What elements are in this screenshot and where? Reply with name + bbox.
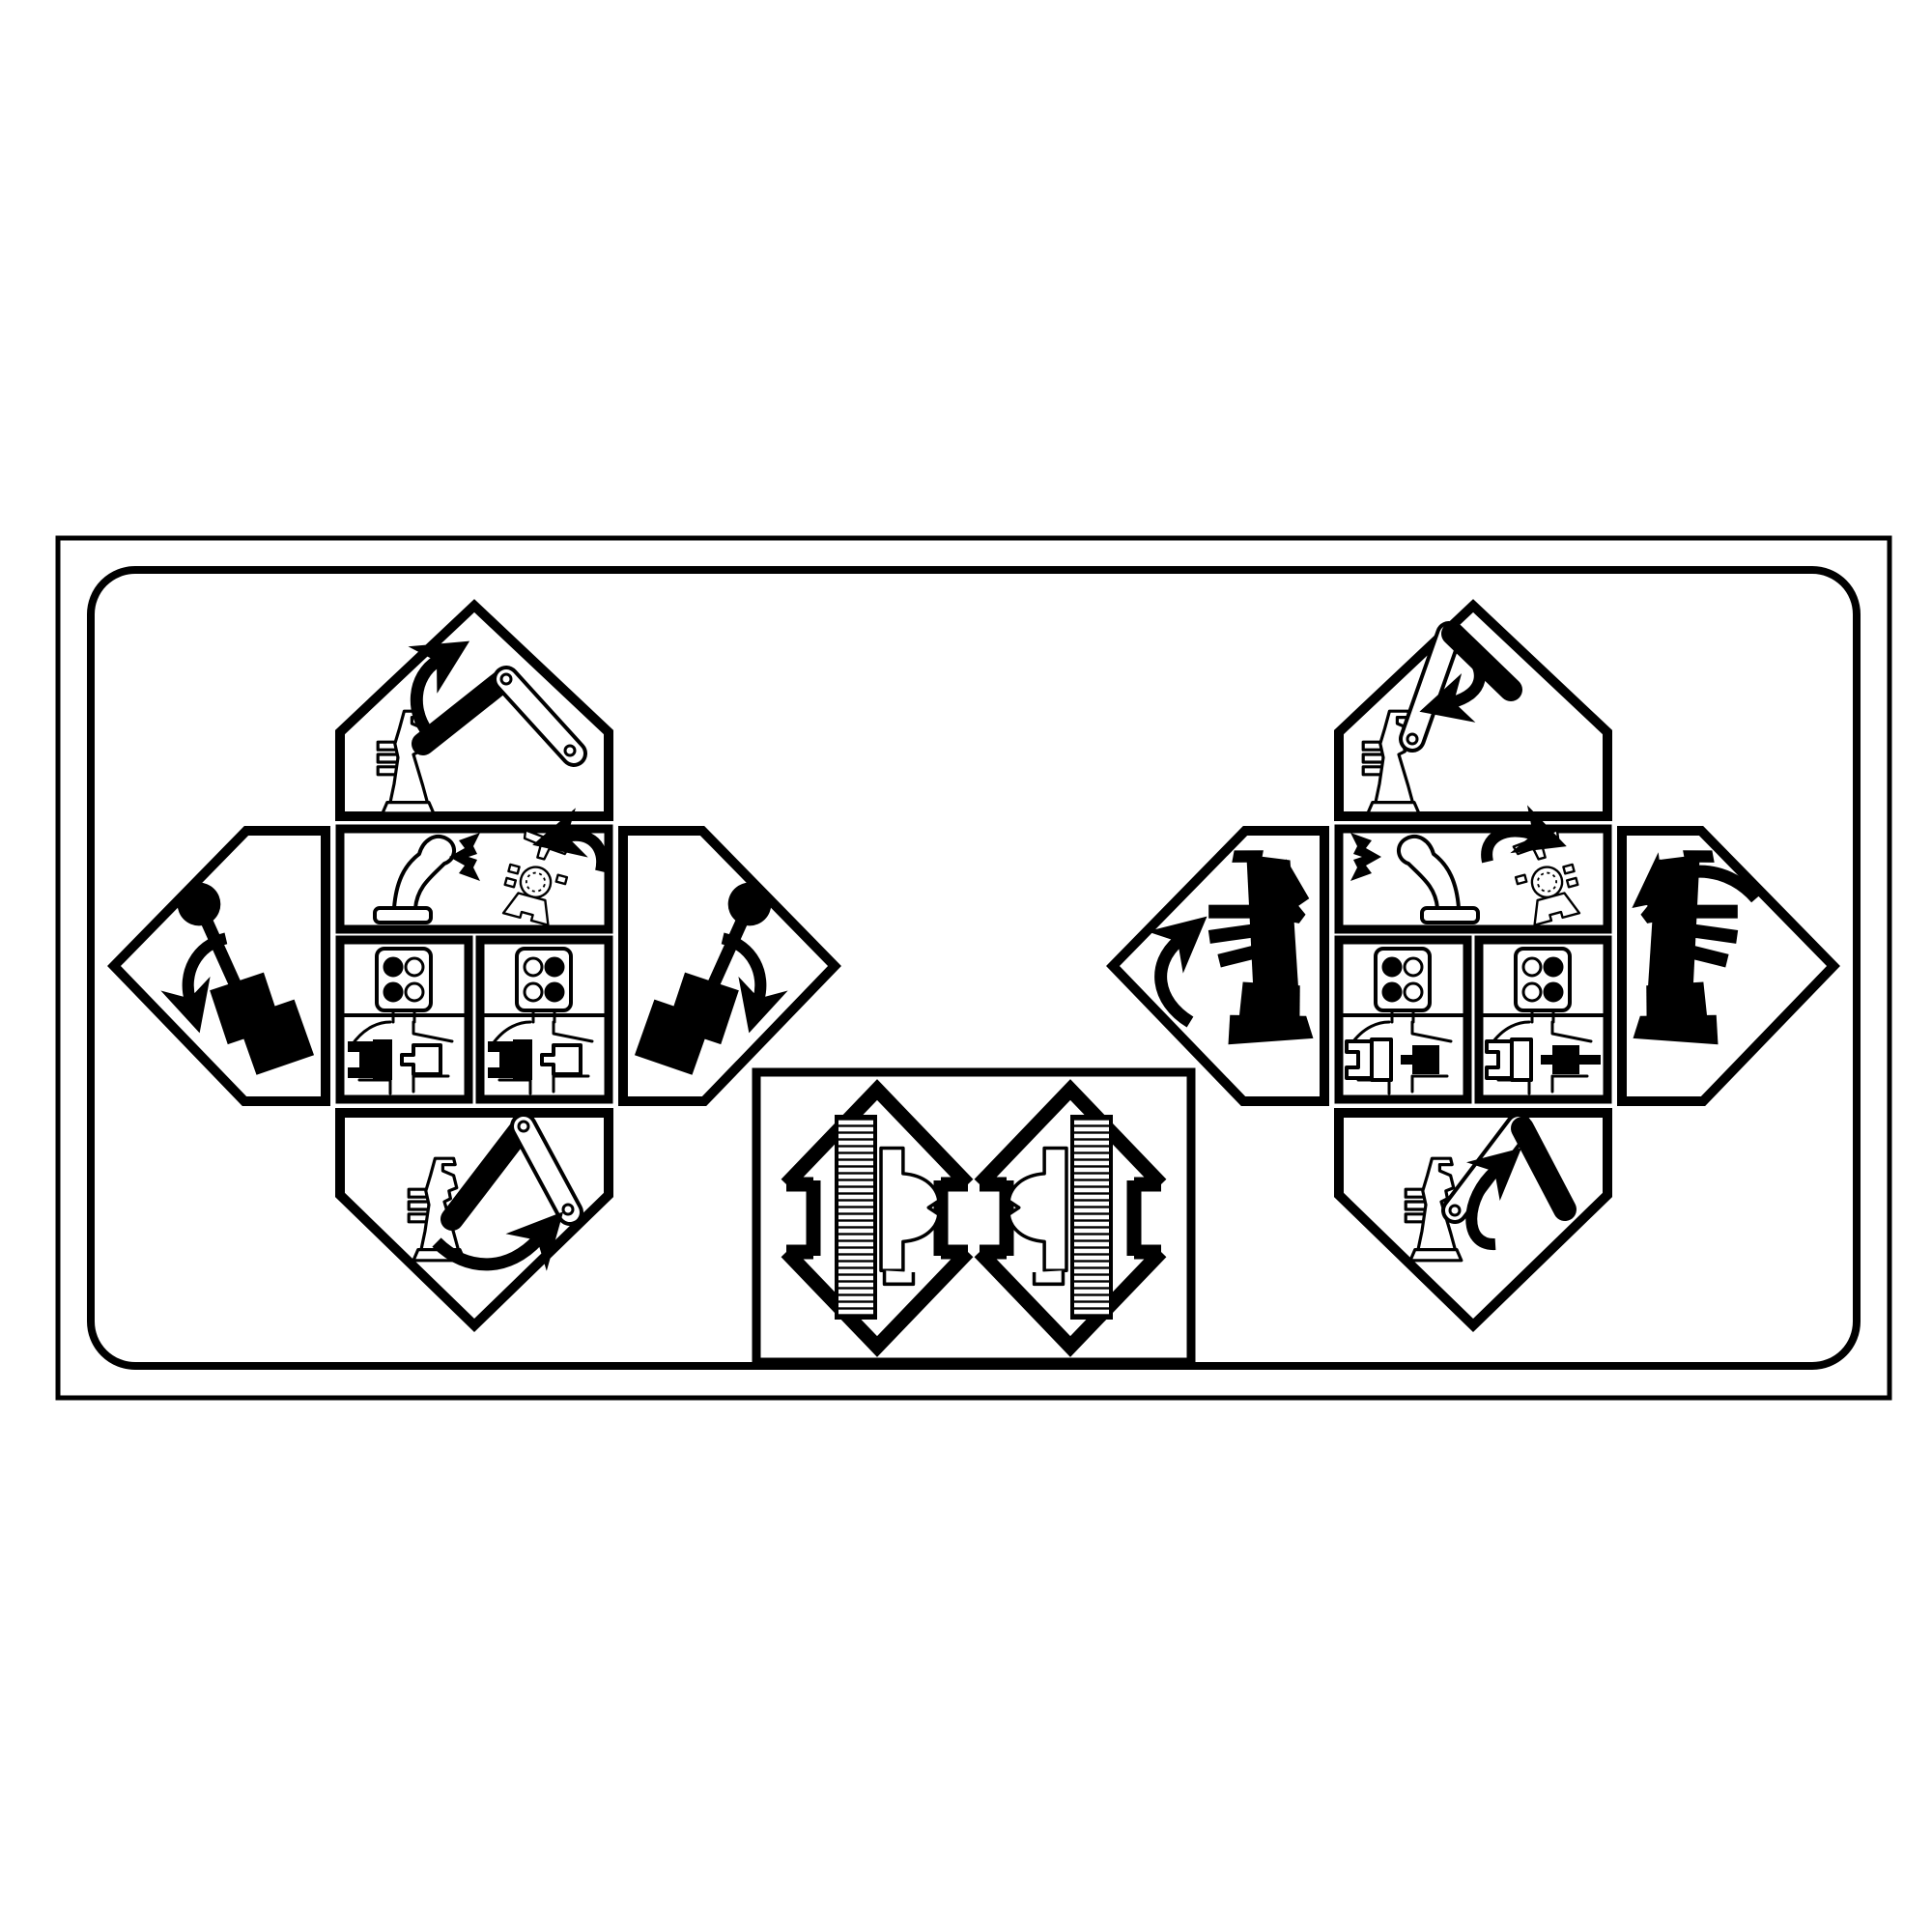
track-tread-icon (1072, 1117, 1111, 1318)
decal-plate (0, 0, 1932, 1932)
travel-control-box (756, 1072, 1191, 1362)
track-tread-icon (837, 1117, 875, 1318)
decal-artwork (0, 0, 1932, 1932)
